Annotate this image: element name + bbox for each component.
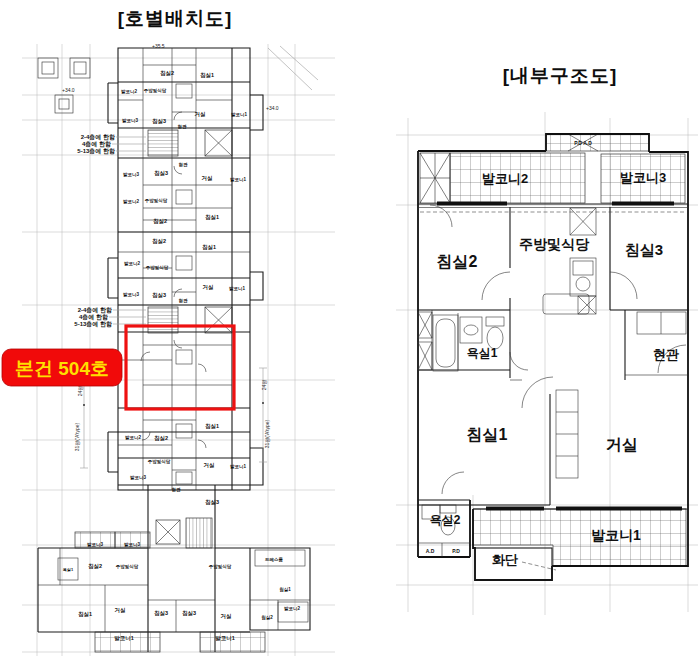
unit-room-label: 침실2	[153, 218, 167, 225]
entry-closet	[637, 312, 686, 334]
room-label-flowerbed: 화단	[492, 552, 518, 567]
unit-room-label: 거실	[202, 175, 213, 182]
floors-note-lower-2: 4층에 한함	[79, 314, 108, 321]
unit-room-label: 발코니1	[114, 635, 134, 642]
unit-room-label: 발코니2	[284, 606, 301, 612]
unit-room-label: 침실1	[205, 423, 219, 430]
unit-room-label: 발코니3	[123, 172, 140, 178]
bottom-wing-walls	[38, 485, 310, 652]
unit-room-label: 주방및식당	[116, 564, 139, 570]
elevation-top: +35.5	[152, 43, 165, 49]
unit-room-label: 침실2	[152, 238, 166, 245]
dim-left-upper: 24평	[77, 386, 84, 397]
room-label-pd: P.D	[452, 548, 460, 554]
unit-room-label: 거실	[115, 607, 126, 614]
unit-room-label: 침실1	[279, 587, 291, 593]
unit-room-label: 침실2	[261, 615, 273, 621]
room-label-bedroom2: 침실2	[437, 253, 478, 270]
unit-room-label: 침실3	[152, 292, 166, 299]
dim-right-lower: 31평('A'type)	[264, 419, 271, 448]
unit-room-label: 발코니3	[123, 292, 140, 298]
unit-room-label: 거실	[203, 284, 214, 291]
unit-room-label: 발코니3	[122, 118, 139, 124]
left-annotations: 2-4층에 한함 4층에 한함 5-13층에 한함 2-4층에 한함 4층에 한…	[62, 43, 279, 468]
elevation-left: +34.0	[62, 87, 75, 93]
room-label-bedroom3: 침실3	[625, 241, 663, 258]
unit-room-label: 침실1	[78, 611, 92, 618]
unit-room-label: 발코니2	[124, 261, 141, 267]
column-grid	[38, 58, 90, 113]
unit-room-label: 발코니1	[215, 635, 235, 642]
floors-note-upper-3: 5-13층에 한함	[77, 148, 115, 155]
unit-room-label: 침실3	[205, 499, 219, 506]
floor-plan-page: [호별배치도] [내부구조도]	[0, 0, 700, 658]
unit-room-label: 침실3	[154, 610, 168, 617]
unit-room-label: 현관	[179, 162, 189, 168]
highlight-box	[126, 326, 234, 409]
unit-room-label: 침실1	[205, 214, 219, 221]
stove	[576, 277, 590, 291]
dining-table	[543, 294, 589, 314]
unit-room-label: 발코니2	[123, 199, 140, 205]
unit-room-label: 주방및식당	[145, 198, 168, 204]
unit-room-label: 주방및식당	[144, 88, 167, 94]
floor-plan-drawing: 2-4층에 한함 4층에 한함 5-13층에 한함 2-4층에 한함 4층에 한…	[0, 0, 700, 658]
room-label-kitchen: 주방및식당	[519, 236, 590, 252]
elevation-right: +34.0	[266, 105, 279, 111]
unit-room-label: 발코니3	[130, 475, 147, 481]
unit-room-label: 발코니2	[121, 89, 138, 95]
bath-sink	[460, 317, 482, 343]
unit-room-label: 거실	[221, 613, 232, 620]
unit-room-label: 침실3	[182, 610, 196, 617]
unit-room-label: 침실1	[200, 72, 214, 79]
room-label-ad: A.D	[426, 548, 435, 554]
unit-room-label: 욕실1	[62, 567, 74, 573]
room-label-living: 거실	[606, 436, 638, 453]
unit-room-label: 현관	[179, 298, 189, 304]
unit-room-label: 침실3	[154, 170, 168, 177]
unit-room-label: 침실2	[88, 563, 102, 570]
right-plan-drawing: 발코니2 발코니3 침실2 주방및식당 침실3 욕실1 현관 침실1 거실 욕실…	[396, 112, 698, 615]
shaft-area	[546, 134, 649, 151]
floors-note-upper-2: 4층에 한함	[82, 141, 111, 148]
unit-room-label: 주방및식당	[146, 265, 169, 271]
highlight-label: 본건 504호	[15, 358, 109, 379]
room-label-balcony3: 발코니3	[620, 170, 666, 185]
unit-room-label: 현관	[172, 487, 182, 493]
room-label-bedroom1: 침실1	[467, 426, 508, 443]
balcony-hatch	[420, 134, 686, 566]
room-label-shaft: P.D A.D	[574, 140, 592, 146]
unit-room-label: 현관	[178, 124, 188, 130]
room-label-entrance: 현관	[653, 347, 679, 362]
floors-note-lower-1: 2-4층에 한함	[78, 307, 112, 314]
dim-left-lower: 31평('A'type)	[74, 422, 81, 451]
unit-room-label: 침실2	[160, 70, 174, 77]
room-label-bath2: 욕실2	[430, 513, 461, 527]
floors-note-upper-1: 2-4층에 한함	[81, 134, 115, 141]
unit-room-label: 침실2	[154, 435, 168, 442]
unit-room-label: 거실	[195, 111, 206, 118]
room-label-balcony1: 발코니1	[591, 527, 641, 543]
room-label-bath1: 욕실1	[467, 346, 498, 360]
unit-room-label: 침실3	[152, 118, 166, 125]
left-plan-drawing: 2-4층에 한함 4층에 한함 5-13층에 한함 2-4층에 한함 4층에 한…	[2, 43, 335, 656]
room-label-balcony2: 발코니2	[482, 171, 528, 186]
unit-room-label: 발코니1	[231, 112, 248, 118]
floors-note-lower-3: 5-13층에 한함	[74, 321, 112, 328]
unit-room-label: 거실	[204, 462, 215, 469]
dim-right-upper: 24평	[261, 380, 268, 391]
unit-room-label: 침실1	[202, 244, 216, 251]
unit-room-label: 주방및식당	[209, 564, 232, 570]
unit-room-label: 주방및식당	[148, 459, 171, 465]
